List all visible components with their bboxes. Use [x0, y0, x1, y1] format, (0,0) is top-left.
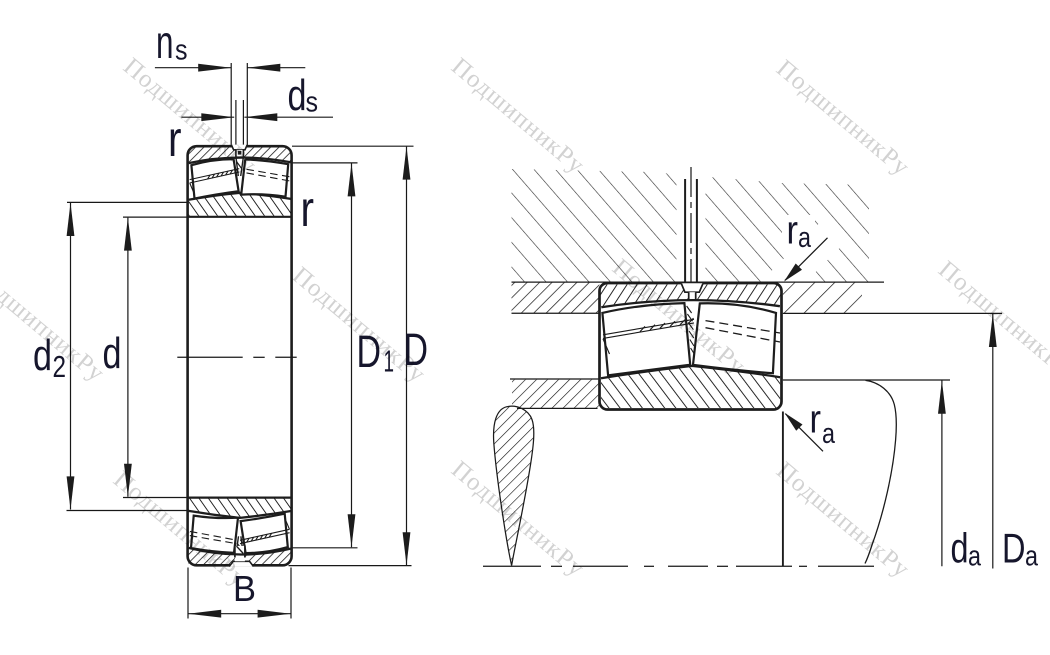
svg-text:D: D: [1002, 525, 1026, 572]
svg-text:r: r: [301, 181, 315, 237]
svg-text:n: n: [156, 16, 174, 68]
svg-text:s: s: [175, 35, 188, 67]
svg-text:d: d: [288, 71, 307, 120]
svg-text:s: s: [306, 87, 319, 119]
svg-text:d: d: [951, 525, 969, 572]
svg-text:a: a: [798, 222, 812, 254]
svg-text:r: r: [810, 398, 822, 442]
svg-text:a: a: [1025, 541, 1039, 573]
svg-text:a: a: [822, 418, 836, 450]
svg-text:a: a: [968, 541, 982, 573]
svg-text:r: r: [787, 209, 799, 253]
